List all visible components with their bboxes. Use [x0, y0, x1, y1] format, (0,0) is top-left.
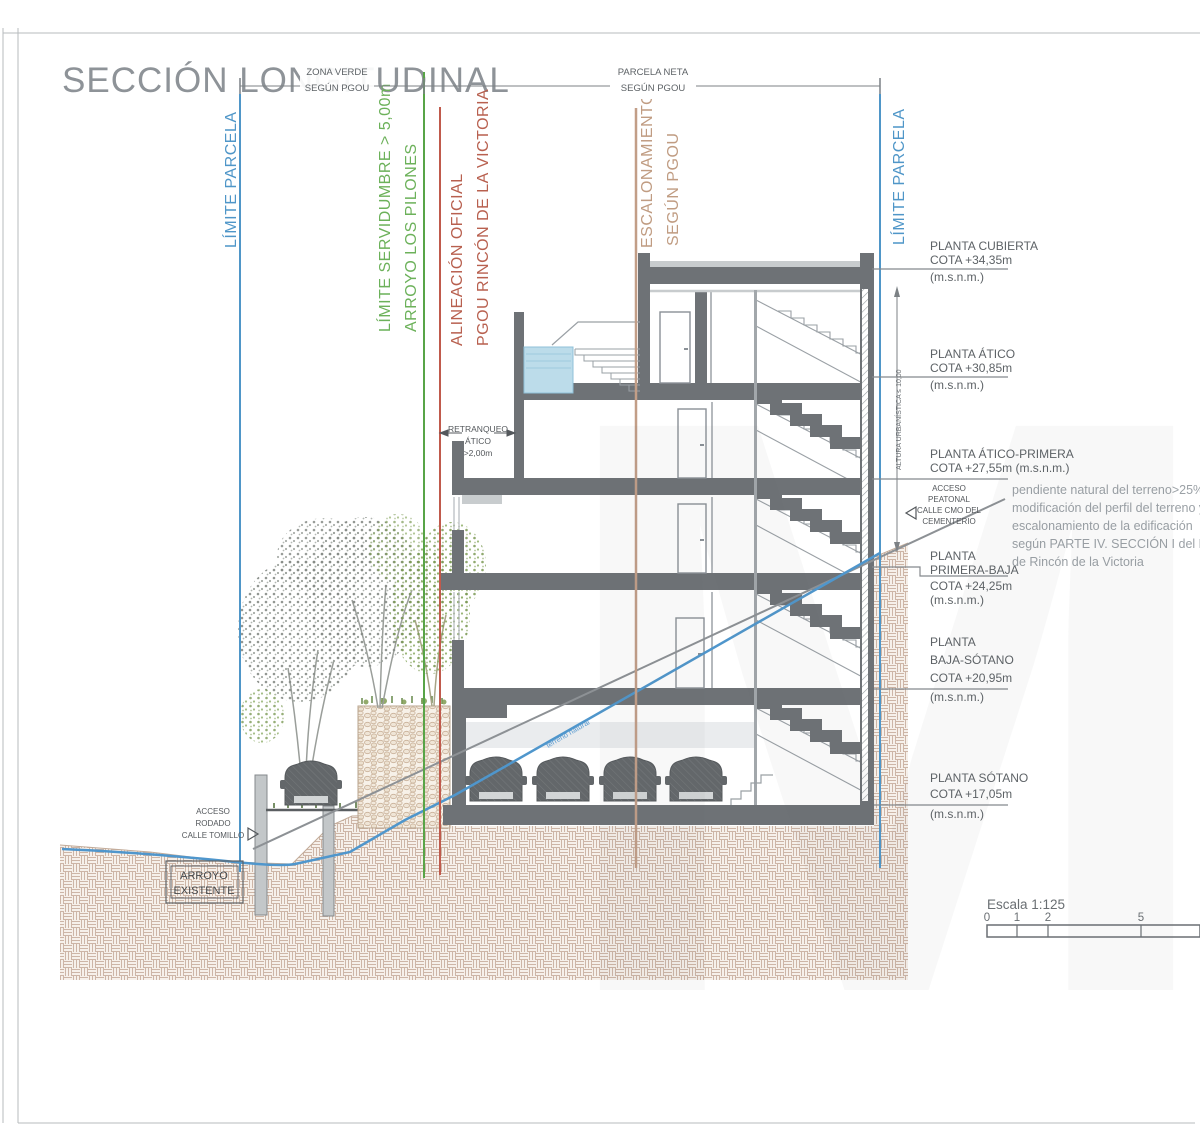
car-exterior — [280, 761, 342, 805]
alineacion-oficial-label: ALINEACIÓN OFICIAL — [447, 173, 466, 346]
pgou-rincon-label: PGOU RINCÓN DE LA VICTORIA — [473, 89, 492, 346]
page-title: SECCIÓN LONGITUDINAL — [62, 61, 510, 100]
arroyo-los-pilones-label: ARROYO LOS PILONES — [403, 143, 420, 332]
arroyo-existente-l2: EXISTENTE — [173, 885, 234, 897]
retranqueo-line2: ÁTICO — [465, 436, 491, 446]
arroyo-existente-l1: ARROYO — [180, 870, 228, 882]
zona-verde-label: ZONA VERDE — [306, 67, 367, 78]
limite-parcela-left-label: LÍMITE PARCELA — [221, 111, 240, 248]
escalonamiento-segun-label: SEGÚN PGOU — [663, 133, 682, 246]
top-dimension: ZONA VERDE SEGÚN PGOU PARCELA NETA SEGÚN… — [240, 63, 880, 99]
drawing-sheet: SECCIÓN LONGITUDINAL — [0, 0, 1200, 1145]
section-drawing: SECCIÓN LONGITUDINAL — [0, 0, 1200, 1145]
escalonamiento-label: ESCALONAMIENTO — [639, 92, 656, 248]
gabion-planter — [358, 696, 450, 828]
parcela-neta-label: PARCELA NETA — [618, 67, 689, 78]
limite-parcela-right-label: LÍMITE PARCELA — [889, 108, 908, 245]
zona-verde-label2: SEGÚN PGOU — [305, 83, 370, 94]
limite-servidumbre-label: LÍMITE SERVIDUMBRE > 5,00m — [375, 83, 394, 332]
acceso-rodado-l2: RODADO — [195, 819, 230, 828]
parcela-neta-label2: SEGÚN PGOU — [621, 83, 686, 94]
retranqueo-annotation: RETRANQUEO ÁTICO >2,00m — [440, 424, 515, 458]
watermark: M — [545, 248, 1200, 1145]
acceso-rodado-annotation: ACCESO RODADO CALLE TOMILLO — [182, 807, 258, 840]
retranqueo-line3: >2,00m — [464, 448, 493, 458]
acceso-rodado-l1: ACCESO — [196, 807, 230, 816]
acceso-rodado-l3: CALLE TOMILLO — [182, 831, 244, 840]
